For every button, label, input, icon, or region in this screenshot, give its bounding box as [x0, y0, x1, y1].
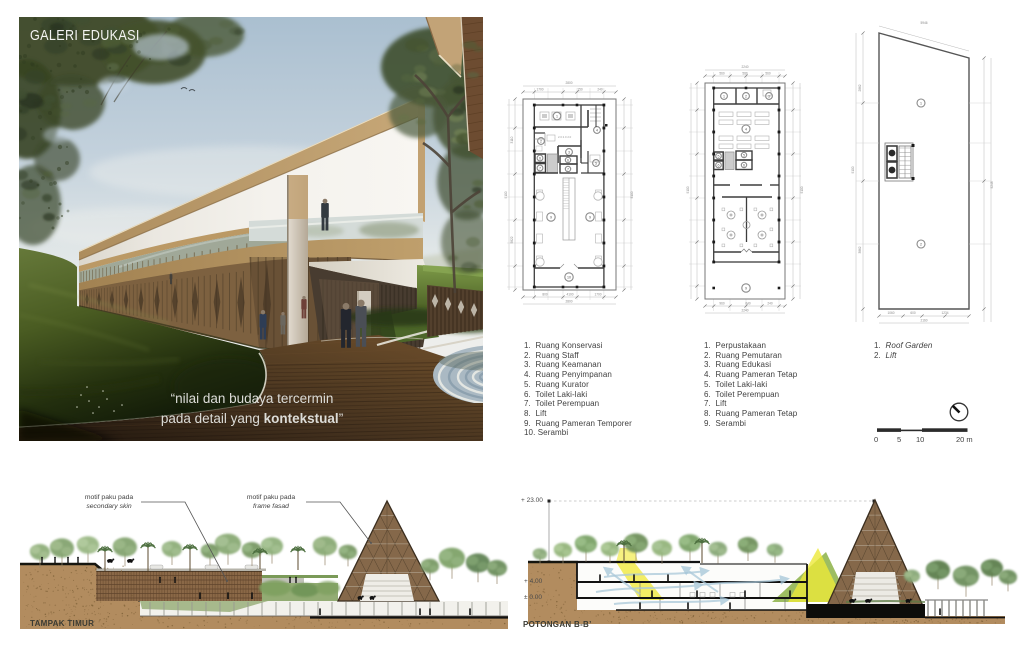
- svg-text:1234: 1234: [941, 311, 948, 315]
- svg-text:2.0 2.0 2.0: 2.0 2.0 2.0: [558, 135, 572, 139]
- svg-text:7: 7: [567, 167, 569, 171]
- svg-text:2: 2: [745, 94, 747, 98]
- svg-text:2: 2: [540, 139, 542, 143]
- svg-text:3: 3: [768, 94, 770, 98]
- svg-text:9: 9: [745, 286, 747, 290]
- svg-text:240: 240: [597, 88, 603, 92]
- svg-text:1: 1: [556, 114, 558, 118]
- svg-text:640: 640: [745, 302, 751, 306]
- svg-text:2: 2: [920, 242, 922, 246]
- svg-text:3862: 3862: [858, 246, 862, 253]
- svg-text:2800: 2800: [565, 300, 572, 304]
- svg-text:6: 6: [743, 163, 745, 167]
- svg-text:560: 560: [719, 72, 725, 76]
- svg-text:6: 6: [539, 156, 541, 160]
- svg-text:4: 4: [745, 127, 747, 131]
- svg-text:10: 10: [567, 275, 571, 279]
- svg-text:1: 1: [920, 101, 922, 105]
- svg-text:6: 6: [567, 158, 569, 162]
- svg-text:150: 150: [577, 88, 583, 92]
- svg-text:3: 3: [568, 150, 570, 154]
- svg-text:5946: 5946: [920, 21, 927, 25]
- svg-text:560: 560: [765, 72, 771, 76]
- svg-text:6: 6: [718, 163, 720, 167]
- svg-text:1700: 1700: [536, 88, 543, 92]
- svg-text:9100: 9100: [686, 186, 690, 193]
- svg-text:1: 1: [723, 94, 725, 98]
- svg-text:9: 9: [550, 215, 552, 219]
- svg-text:2240: 2240: [741, 65, 748, 69]
- svg-text:2160: 2160: [920, 319, 927, 323]
- svg-text:9248: 9248: [990, 181, 994, 188]
- svg-text:9100: 9100: [504, 191, 508, 198]
- svg-text:800: 800: [542, 293, 548, 297]
- svg-text:240: 240: [767, 302, 773, 306]
- svg-text:9100: 9100: [630, 191, 634, 198]
- svg-text:560: 560: [742, 72, 748, 76]
- svg-text:9: 9: [589, 215, 591, 219]
- svg-text:4: 4: [596, 128, 598, 132]
- svg-text:7: 7: [539, 166, 541, 170]
- svg-text:1700: 1700: [594, 293, 601, 297]
- svg-text:960: 960: [719, 302, 725, 306]
- svg-text:1060: 1060: [887, 311, 894, 315]
- svg-text:9100: 9100: [851, 166, 855, 173]
- svg-text:2862: 2862: [858, 84, 862, 91]
- svg-text:5: 5: [718, 154, 720, 158]
- svg-text:2240: 2240: [741, 309, 748, 313]
- svg-text:600: 600: [910, 311, 916, 315]
- svg-text:5: 5: [743, 153, 745, 157]
- svg-text:4100: 4100: [566, 293, 573, 297]
- svg-text:5822: 5822: [510, 236, 514, 243]
- svg-text:3110: 3110: [510, 136, 514, 143]
- svg-text:2800: 2800: [565, 81, 572, 85]
- svg-text:9100: 9100: [800, 186, 804, 193]
